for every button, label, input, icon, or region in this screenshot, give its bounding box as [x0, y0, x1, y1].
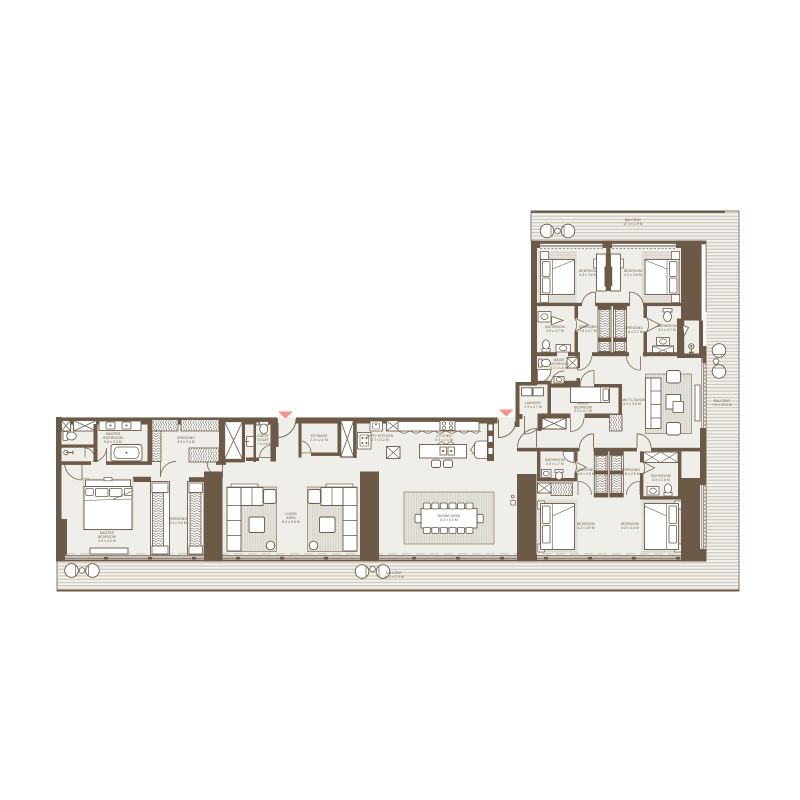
svg-text:BEDROOM4.3 x 3.6 M: BEDROOM4.3 x 3.6 M	[621, 522, 639, 530]
svg-text:DRESSING1.8 x 2.7 M: DRESSING1.8 x 2.7 M	[579, 325, 597, 333]
svg-text:BATHROOM3.0 x 2.7 M: BATHROOM3.0 x 2.7 M	[657, 324, 677, 332]
svg-text:BEDROOM4.3 x 3.8 M: BEDROOM4.3 x 3.8 M	[579, 269, 597, 277]
svg-text:DRESSING1.8 x 2.7 M: DRESSING1.8 x 2.7 M	[625, 326, 643, 334]
svg-text:STORAGE2.4 x 2.2 M: STORAGE2.4 x 2.2 M	[310, 434, 328, 442]
svg-text:BATHROOM3.5 x 2.6 M: BATHROOM3.5 x 2.6 M	[651, 474, 671, 482]
svg-text:DRESSING4.5 x 2.4 M: DRESSING4.5 x 2.4 M	[177, 436, 195, 444]
svg-text:BEDROOM4.2 x 3.9 M: BEDROOM4.2 x 3.9 M	[577, 522, 595, 530]
svg-text:KITCHEN5.0 x 2.4 M: KITCHEN5.0 x 2.4 M	[435, 434, 453, 442]
svg-text:DRESSING1.8 x 2.3 M: DRESSING1.8 x 2.3 M	[577, 468, 595, 476]
svg-text:LAUNDRY1.9 x 2.7 M: LAUNDRY1.9 x 2.7 M	[524, 401, 542, 409]
svg-text:MASTERBEDROOM4.9 x 4.2 M: MASTERBEDROOM4.9 x 4.2 M	[98, 531, 116, 543]
svg-text:BALCONY17.1 x 1.9 M: BALCONY17.1 x 1.9 M	[623, 218, 642, 226]
svg-text:BALCONY45.4 x 1.9 M: BALCONY45.4 x 1.9 M	[384, 571, 403, 579]
svg-text:DINING AREA8.2 x 6.0 M: DINING AREA8.2 x 6.0 M	[438, 514, 461, 522]
svg-text:DRESSING3.1 x 4.6 M: DRESSING3.1 x 4.6 M	[169, 517, 187, 525]
svg-text:BATHROOM3.5 x 1.7 M: BATHROOM3.5 x 1.7 M	[545, 458, 565, 466]
svg-text:BALCONY1.9 x 23.5 M: BALCONY1.9 x 23.5 M	[712, 399, 731, 407]
svg-text:MASTERBATHROOM5.5 x 2.4 M: MASTERBATHROOM5.5 x 2.4 M	[103, 432, 123, 444]
svg-text:BEDROOM4.3 x 3.8 M: BEDROOM4.3 x 3.8 M	[624, 269, 642, 277]
svg-text:BATHROOM2.5 x 2.7 M: BATHROOM2.5 x 2.7 M	[545, 325, 565, 333]
svg-text:DRESSING1.8 x 2.6 M: DRESSING1.8 x 2.6 M	[622, 468, 640, 476]
